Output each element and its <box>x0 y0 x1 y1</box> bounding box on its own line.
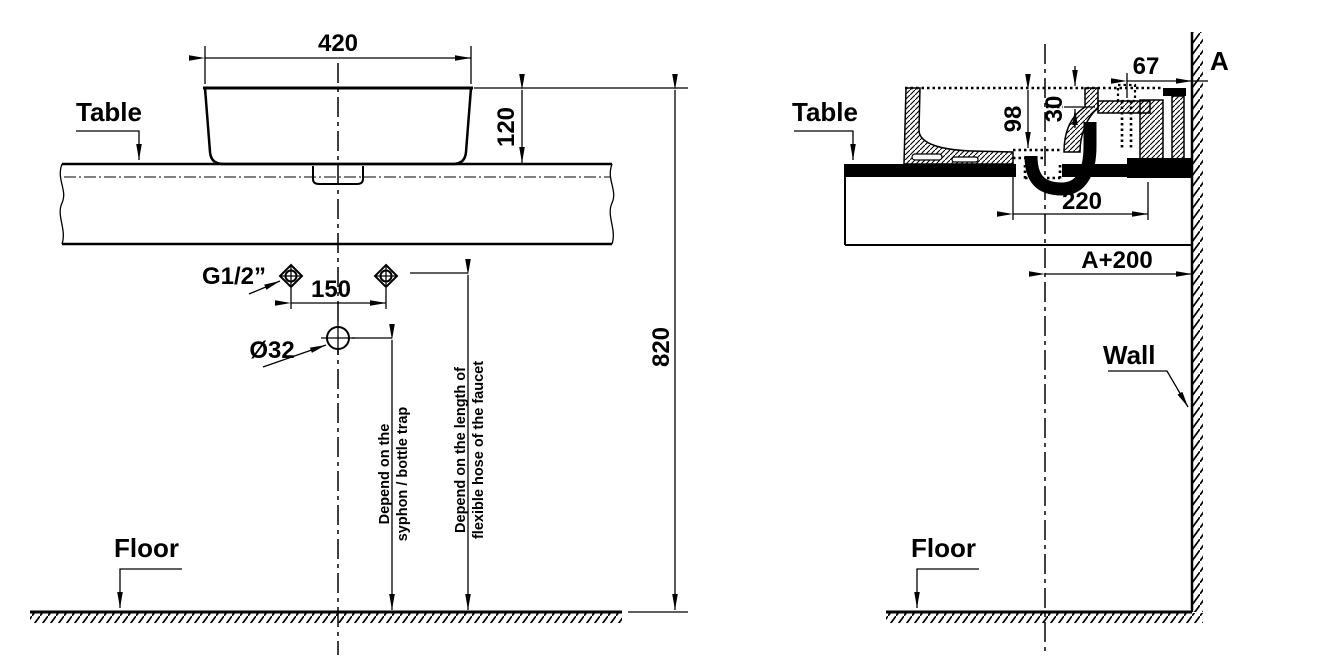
side-view: 67 A 98 30 220 A+200 Table <box>792 32 1229 655</box>
side-floor-text: Floor <box>911 533 976 563</box>
front-floor-text: Floor <box>114 533 179 563</box>
drawing-canvas: 420 120 820 <box>0 0 1319 657</box>
dim-width-text: 420 <box>318 30 358 57</box>
dim-faucet-spacing-text: 150 <box>311 276 351 303</box>
dimension-syphon-note: Depend on the syphon / bottle trap <box>352 338 411 610</box>
hose-note-line1: Depend on the length of <box>453 367 469 533</box>
drain-hole-symbol: Ø32 <box>249 321 355 367</box>
dim-drain-to-back-text: 220 <box>1062 188 1102 215</box>
dim-center-to-wall-text: A+200 <box>1081 247 1152 274</box>
dimension-hose-note: Depend on the length of flexible hose of… <box>410 273 487 610</box>
side-wall-label: Wall <box>1103 340 1188 407</box>
side-table-label: Table <box>792 97 858 160</box>
front-table-text: Table <box>76 97 142 127</box>
syphon-note-line1: Depend on the <box>377 424 393 525</box>
dimension-bowl-depth-98: 98 <box>1000 90 1028 148</box>
side-wall <box>1192 32 1203 612</box>
dim-rim-to-wall-text: 67 <box>1133 53 1160 80</box>
front-view: 420 120 820 <box>30 30 688 655</box>
table-break-right <box>610 164 614 244</box>
side-floor-label: Floor <box>911 533 979 608</box>
dimension-basin-height-120: 120 <box>474 88 688 163</box>
dimension-rim-height-820: 820 <box>628 90 688 612</box>
dim-rim-to-deck-text: 30 <box>1041 96 1068 123</box>
syphon-note-line2: syphon / bottle trap <box>395 407 411 542</box>
front-floor <box>30 612 622 623</box>
front-table-label: Table <box>76 97 142 160</box>
dim-bowl-depth-text: 98 <box>1000 106 1027 133</box>
side-table-text: Table <box>792 97 858 127</box>
front-floor-label: Floor <box>114 533 182 608</box>
hose-note-line2: flexible hose of the faucet <box>471 361 487 539</box>
installation-drawing: 420 120 820 <box>0 0 1319 657</box>
faucet-hole-symbol-right <box>375 265 397 287</box>
faucet-thread-text: G1/2” <box>202 263 266 290</box>
drain-diameter-text: Ø32 <box>249 337 294 364</box>
faucet-hole-symbols: G1/2” <box>202 263 397 294</box>
side-wall-text: Wall <box>1103 340 1155 370</box>
section-a-text: A <box>1210 46 1229 76</box>
table-break-left <box>60 164 64 244</box>
faucet-hole-symbol-left <box>280 265 302 287</box>
front-table <box>60 164 614 244</box>
dim-basin-height-text: 120 <box>493 107 520 147</box>
dim-rim-height-text: 820 <box>648 327 675 367</box>
dimension-center-to-wall: A+200 <box>1045 247 1192 274</box>
